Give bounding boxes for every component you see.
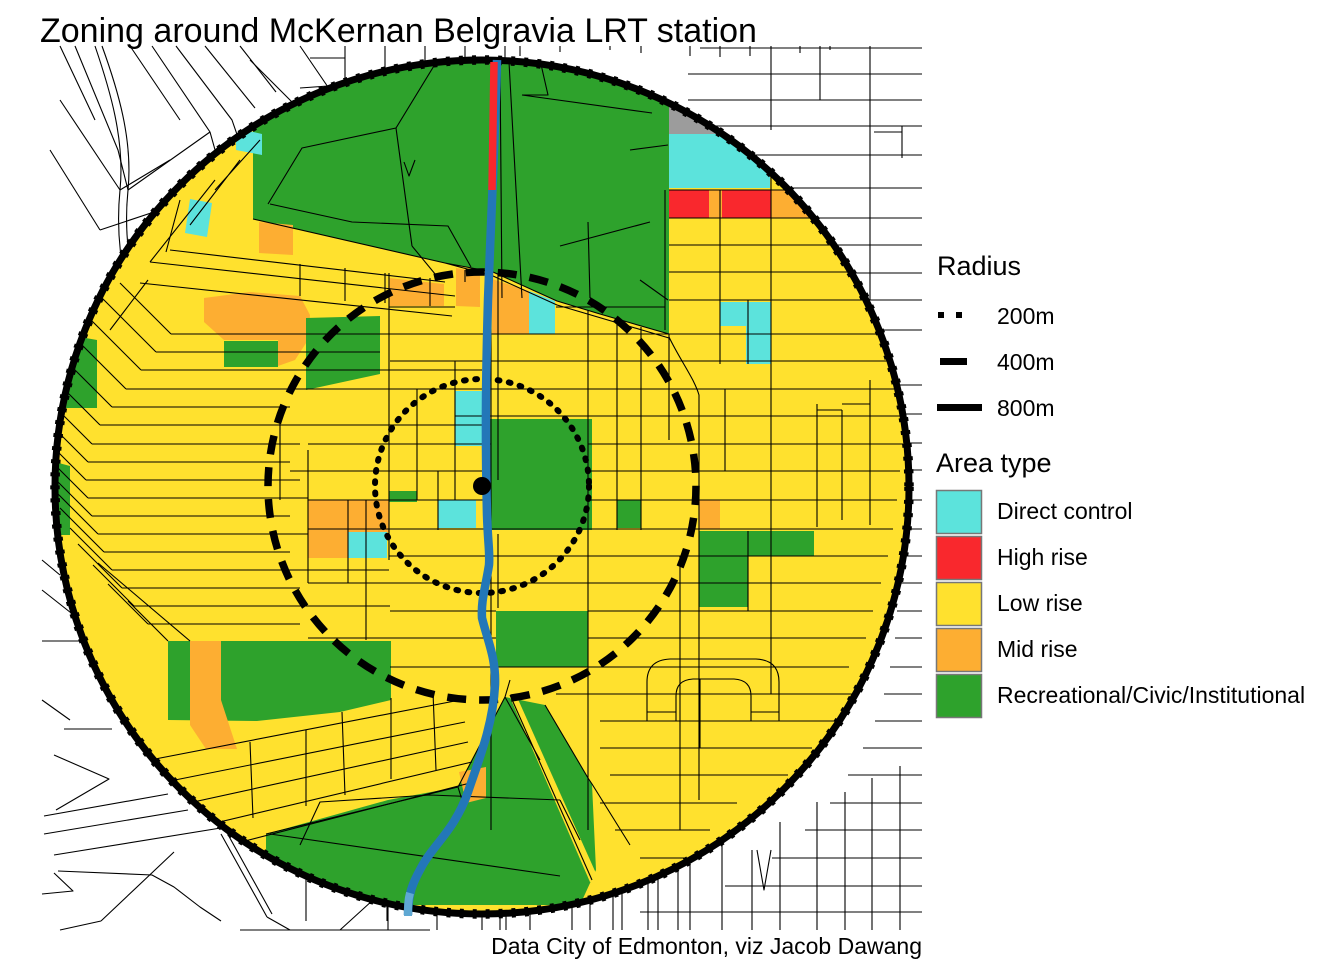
svg-text:Data City of Edmonton, viz Jac: Data City of Edmonton, viz Jacob Dawang	[491, 933, 922, 959]
svg-text:Recreational/Civic/Institution: Recreational/Civic/Institutional	[997, 682, 1305, 708]
svg-text:Area type: Area type	[936, 448, 1052, 478]
svg-text:800m: 800m	[997, 395, 1055, 421]
svg-text:Mid rise: Mid rise	[997, 636, 1078, 662]
svg-text:Radius: Radius	[937, 251, 1021, 281]
svg-text:Direct control: Direct control	[997, 498, 1132, 524]
svg-text:Zoning around McKernan Belgrav: Zoning around McKernan Belgravia LRT sta…	[40, 12, 757, 50]
svg-text:400m: 400m	[997, 349, 1055, 375]
svg-text:Low rise: Low rise	[997, 590, 1083, 616]
svg-text:200m: 200m	[997, 303, 1055, 329]
svg-text:High rise: High rise	[997, 544, 1088, 570]
